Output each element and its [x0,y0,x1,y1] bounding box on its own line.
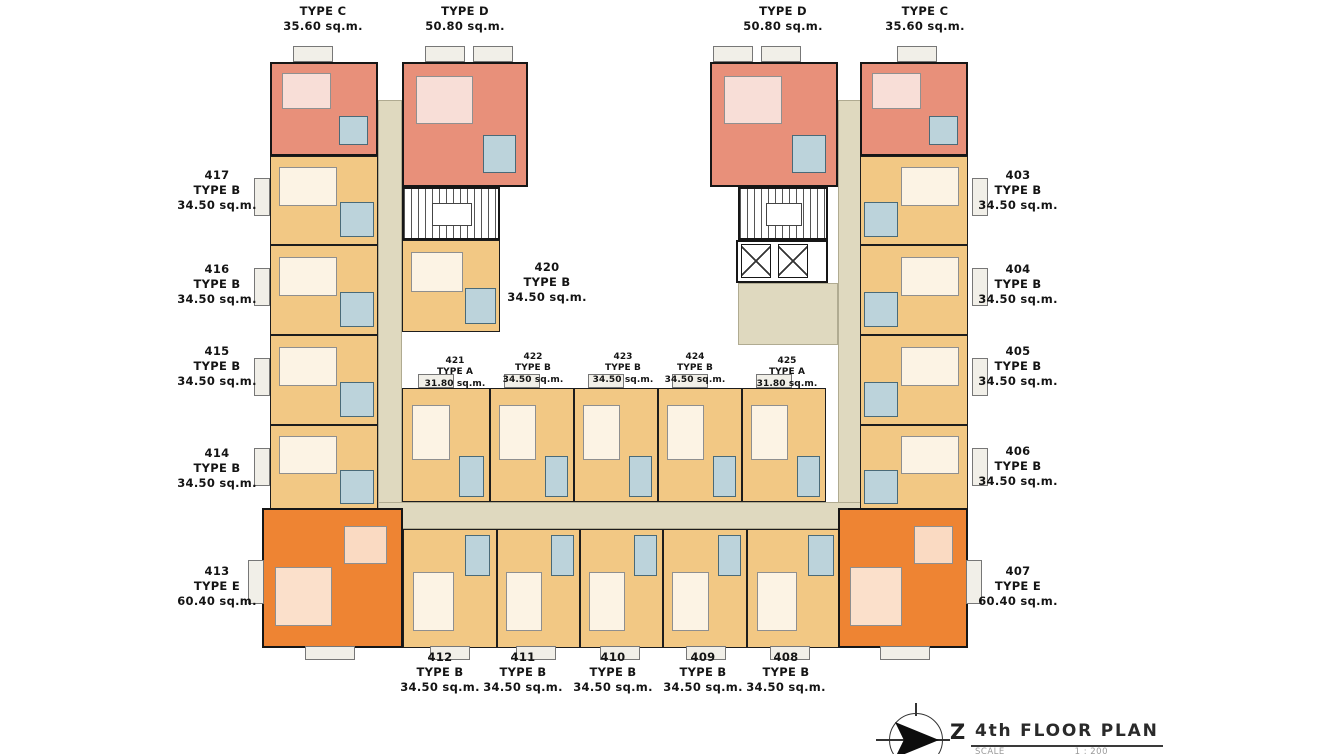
unit-area: 34.50 sq.m. [978,374,1057,389]
unit-number: 404 [978,262,1057,277]
unit-type: TYPE B [400,665,479,680]
unit-label-404: 404 TYPE B 34.50 sq.m. [978,262,1057,307]
corridor-bottom [378,502,862,529]
unit-block-type-d-right [710,62,838,187]
type-label-c-left: TYPE C 35.60 sq.m. [283,4,362,34]
unit-type: TYPE E [978,579,1057,594]
unit-area: 34.50 sq.m. [177,198,256,213]
balcony [473,46,513,62]
unit-block-408 [747,529,840,648]
unit-label-413: 413 TYPE E 60.40 sq.m. [177,564,256,609]
stairwell-left-icon [402,187,500,240]
unit-block-412 [403,529,497,648]
unit-area: 34.50 sq.m. [665,375,726,386]
type-label-d-right: TYPE D 50.80 sq.m. [743,4,822,34]
floor-plan-title: 4th FLOOR PLAN [971,721,1163,747]
unit-block-410 [580,529,663,648]
unit-type: TYPE B [177,359,256,374]
unit-label-411: 411 TYPE B 34.50 sq.m. [483,650,562,695]
type-area: 50.80 sq.m. [743,19,822,34]
unit-number: 407 [978,564,1057,579]
scale-row: SCALE 1 : 200 [975,747,1108,754]
unit-area: 34.50 sq.m. [978,198,1057,213]
unit-area: 34.50 sq.m. [978,292,1057,307]
unit-type: TYPE B [978,459,1057,474]
corridor-left [378,100,402,512]
unit-type: TYPE B [978,183,1057,198]
balcony [713,46,753,62]
unit-number: 416 [177,262,256,277]
type-label-c-right: TYPE C 35.60 sq.m. [885,4,964,34]
unit-number: 423 [593,352,654,363]
balcony [425,46,465,62]
unit-block-407 [838,508,968,648]
stairwell-right-icon [738,187,828,240]
balcony [305,646,355,660]
unit-area: 34.50 sq.m. [177,292,256,307]
unit-number: 406 [978,444,1057,459]
unit-area: 60.40 sq.m. [177,594,256,609]
unit-type: TYPE B [746,665,825,680]
unit-block-417 [270,156,378,245]
unit-type: TYPE B [663,665,742,680]
type-area: 35.60 sq.m. [283,19,362,34]
unit-number: 408 [746,650,825,665]
unit-label-407: 407 TYPE E 60.40 sq.m. [978,564,1057,609]
unit-area: 34.50 sq.m. [663,680,742,695]
unit-block-405 [860,335,968,425]
unit-number: 421 [425,356,486,367]
unit-type: TYPE B [573,665,652,680]
unit-number: 414 [177,446,256,461]
unit-number: 411 [483,650,562,665]
unit-type: TYPE B [503,363,564,374]
unit-area: 60.40 sq.m. [978,594,1057,609]
unit-area: 34.50 sq.m. [507,290,586,305]
unit-type: TYPE B [978,359,1057,374]
balcony [897,46,937,62]
unit-label-423: 423 TYPE B 34.50 sq.m. [593,352,654,386]
unit-type: TYPE A [425,367,486,378]
unit-type: TYPE B [507,275,586,290]
unit-type: TYPE B [665,363,726,374]
unit-label-410: 410 TYPE B 34.50 sq.m. [573,650,652,695]
unit-label-414: 414 TYPE B 34.50 sq.m. [177,446,256,491]
unit-block-403 [860,156,968,245]
scale-label: SCALE [975,747,1005,754]
unit-label-425: 425 TYPE A 31.80 sq.m. [757,356,818,390]
unit-block-421 [402,388,490,502]
unit-area: 34.50 sq.m. [177,374,256,389]
unit-block-413 [262,508,403,648]
floor-plan-canvas: TYPE C 35.60 sq.m. TYPE D 50.80 sq.m. TY… [0,0,1342,754]
unit-label-416: 416 TYPE B 34.50 sq.m. [177,262,256,307]
unit-number: 420 [507,260,586,275]
unit-number: 417 [177,168,256,183]
unit-block-425 [742,388,826,502]
unit-area: 34.50 sq.m. [593,375,654,386]
unit-label-415: 415 TYPE B 34.50 sq.m. [177,344,256,389]
balcony [880,646,930,660]
unit-area: 34.50 sq.m. [177,476,256,491]
unit-block-416 [270,245,378,335]
unit-label-421: 421 TYPE A 31.80 sq.m. [425,356,486,390]
unit-block-406 [860,425,968,512]
unit-area: 34.50 sq.m. [978,474,1057,489]
unit-number: 413 [177,564,256,579]
type-area: 50.80 sq.m. [425,19,504,34]
unit-area: 34.50 sq.m. [746,680,825,695]
unit-block-411 [497,529,580,648]
unit-number: 424 [665,352,726,363]
unit-label-424: 424 TYPE B 34.50 sq.m. [665,352,726,386]
unit-block-type-c-right [860,62,968,156]
type-name: TYPE D [743,4,822,19]
unit-number: 409 [663,650,742,665]
type-name: TYPE C [283,4,362,19]
unit-number: 425 [757,356,818,367]
unit-label-412: 412 TYPE B 34.50 sq.m. [400,650,479,695]
unit-label-408: 408 TYPE B 34.50 sq.m. [746,650,825,695]
elevator-lobby [738,283,838,345]
unit-label-420: 420 TYPE B 34.50 sq.m. [507,260,586,305]
unit-label-403: 403 TYPE B 34.50 sq.m. [978,168,1057,213]
unit-type: TYPE B [593,363,654,374]
unit-label-406: 406 TYPE B 34.50 sq.m. [978,444,1057,489]
type-label-d-left: TYPE D 50.80 sq.m. [425,4,504,34]
corridor-right [838,100,862,512]
unit-number: 412 [400,650,479,665]
unit-block-414 [270,425,378,512]
unit-area: 34.50 sq.m. [400,680,479,695]
unit-block-type-c-left [270,62,378,156]
unit-block-423 [574,388,658,502]
unit-number: 422 [503,352,564,363]
unit-block-type-d-left [402,62,528,187]
unit-type: TYPE B [483,665,562,680]
unit-type: TYPE B [177,461,256,476]
balcony [293,46,333,62]
unit-number: 410 [573,650,652,665]
unit-type: TYPE B [978,277,1057,292]
unit-block-404 [860,245,968,335]
type-area: 35.60 sq.m. [885,19,964,34]
unit-type: TYPE A [757,367,818,378]
unit-label-405: 405 TYPE B 34.50 sq.m. [978,344,1057,389]
unit-label-409: 409 TYPE B 34.50 sq.m. [663,650,742,695]
unit-block-422 [490,388,574,502]
unit-block-424 [658,388,742,502]
unit-label-417: 417 TYPE B 34.50 sq.m. [177,168,256,213]
type-name: TYPE D [425,4,504,19]
elevator-icon [741,244,771,278]
unit-area: 34.50 sq.m. [483,680,562,695]
unit-label-422: 422 TYPE B 34.50 sq.m. [503,352,564,386]
unit-area: 34.50 sq.m. [503,375,564,386]
unit-area: 31.80 sq.m. [757,379,818,390]
type-name: TYPE C [885,4,964,19]
unit-number: 415 [177,344,256,359]
unit-type: TYPE B [177,183,256,198]
scale-value: 1 : 200 [1075,747,1108,754]
balcony [761,46,801,62]
north-symbol: Z [950,720,965,744]
unit-block-420 [402,240,500,332]
unit-type: TYPE B [177,277,256,292]
unit-area: 34.50 sq.m. [573,680,652,695]
unit-number: 403 [978,168,1057,183]
unit-number: 405 [978,344,1057,359]
unit-area: 31.80 sq.m. [425,379,486,390]
unit-block-415 [270,335,378,425]
unit-type: TYPE E [177,579,256,594]
elevator-icon [778,244,808,278]
unit-block-409 [663,529,747,648]
